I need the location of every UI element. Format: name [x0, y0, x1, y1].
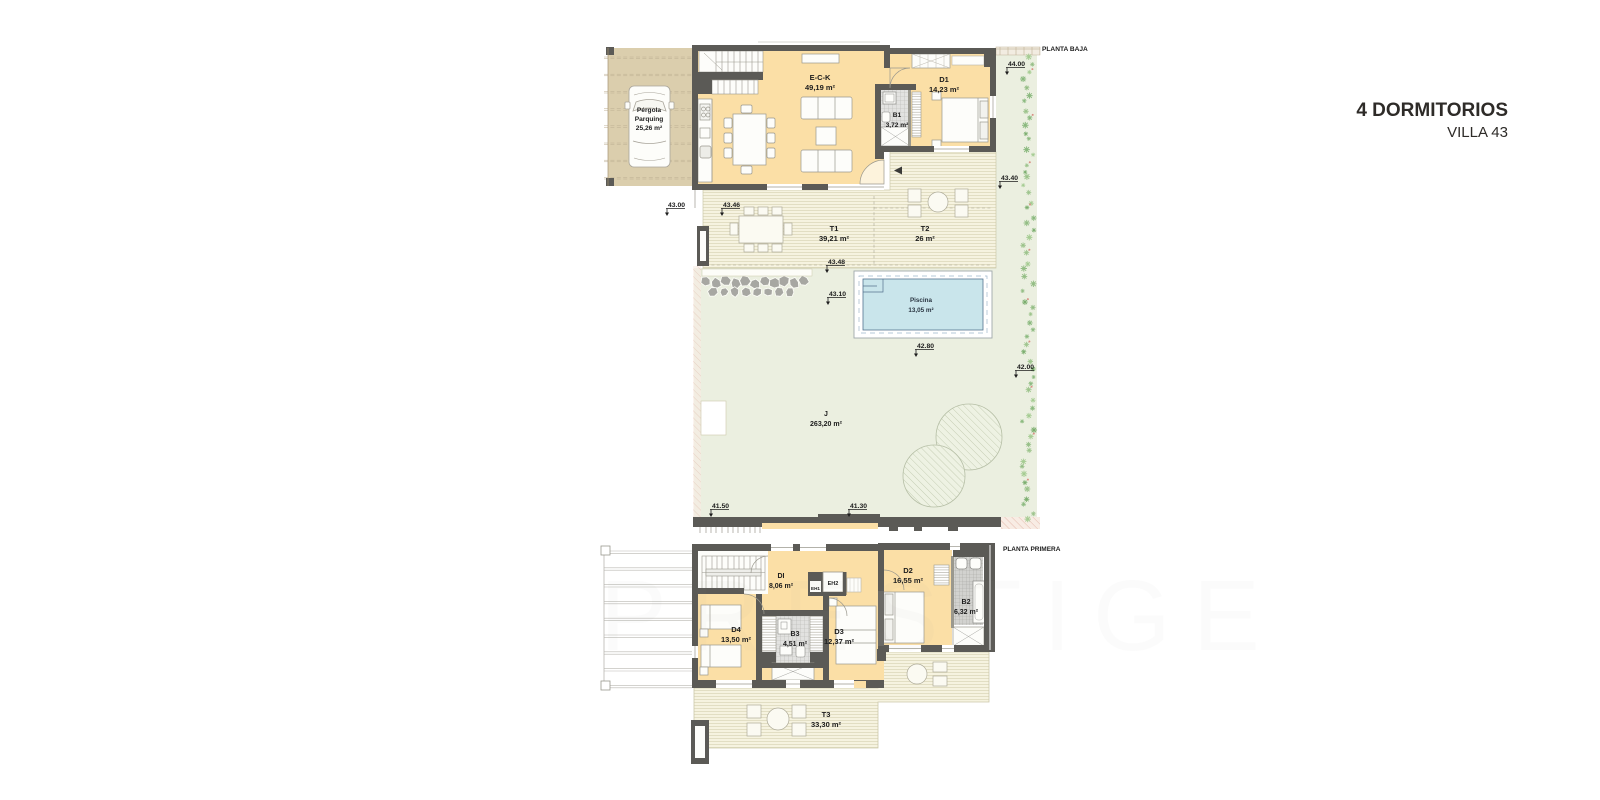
svg-text:T3: T3: [822, 710, 831, 719]
svg-text:Piscina: Piscina: [910, 297, 933, 304]
svg-text:44.00: 44.00: [1008, 61, 1025, 68]
svg-text:4 DORMITORIOS: 4 DORMITORIOS: [1356, 100, 1508, 121]
svg-text:43.10: 43.10: [829, 291, 846, 298]
svg-text:263,20 m²: 263,20 m²: [810, 421, 843, 428]
svg-text:43.46: 43.46: [723, 202, 740, 209]
svg-text:43.40: 43.40: [1001, 175, 1018, 182]
svg-text:Parquing: Parquing: [635, 116, 664, 123]
svg-text:VILLA 43: VILLA 43: [1447, 124, 1508, 141]
svg-text:T2: T2: [921, 224, 930, 233]
svg-text:42.80: 42.80: [917, 343, 934, 350]
svg-text:41.50: 41.50: [712, 503, 729, 510]
svg-text:49,19 m²: 49,19 m²: [805, 83, 836, 92]
svg-text:42.00: 42.00: [1017, 364, 1034, 371]
svg-text:PLANTA BAJA: PLANTA BAJA: [1042, 46, 1088, 53]
svg-text:43.00: 43.00: [668, 202, 685, 209]
svg-text:26 m²: 26 m²: [915, 234, 935, 243]
svg-text:13,05 m²: 13,05 m²: [908, 307, 933, 314]
svg-text:PRESTIGE: PRESTIGE: [600, 560, 1282, 672]
svg-text:25,26 m²: 25,26 m²: [636, 125, 663, 132]
svg-text:J: J: [824, 411, 828, 418]
svg-text:43.48: 43.48: [828, 259, 845, 266]
svg-text:14,23 m²: 14,23 m²: [929, 85, 960, 94]
svg-text:3,72 m²: 3,72 m²: [886, 122, 910, 129]
svg-text:39,21 m²: 39,21 m²: [819, 234, 850, 243]
svg-text:Pérgola: Pérgola: [637, 107, 662, 114]
svg-text:E-C-K: E-C-K: [810, 73, 831, 82]
svg-text:D1: D1: [939, 75, 949, 84]
svg-text:PLANTA PRIMERA: PLANTA PRIMERA: [1003, 546, 1061, 553]
svg-text:41.30: 41.30: [850, 503, 867, 510]
svg-text:33,30 m²: 33,30 m²: [811, 720, 842, 729]
svg-text:T1: T1: [830, 224, 839, 233]
svg-text:B1: B1: [893, 112, 902, 119]
